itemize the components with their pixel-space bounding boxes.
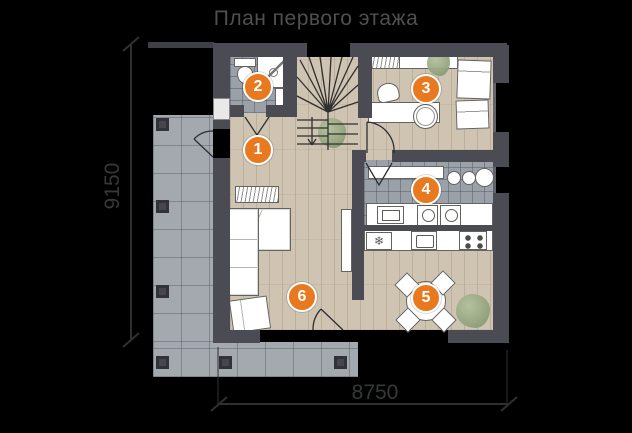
window-left bbox=[213, 98, 230, 120]
room-marker-2: 2 bbox=[243, 72, 273, 102]
room-number: 1 bbox=[254, 141, 263, 159]
dimension-label-height: 9150 bbox=[101, 147, 125, 225]
dimension-line-left bbox=[123, 37, 139, 347]
terrace-fence bbox=[148, 42, 214, 48]
room-marker-4: 4 bbox=[411, 175, 441, 205]
bed-icon bbox=[456, 59, 491, 99]
wall-bedroom-laundry bbox=[352, 150, 366, 162]
wall-living-kitchen bbox=[352, 162, 364, 300]
sofa-icon bbox=[228, 208, 259, 296]
fridge-icon: ❄ bbox=[366, 232, 392, 250]
terrace-post bbox=[334, 356, 347, 369]
sink-bowl-icon bbox=[447, 171, 461, 185]
window-glass bbox=[493, 167, 496, 193]
floor-plan-viewer: План первого этажа 9150 8750 bbox=[0, 0, 632, 433]
wall-bottom-right bbox=[448, 330, 507, 343]
terrace-post bbox=[219, 356, 232, 369]
wall-bottom-left bbox=[213, 330, 260, 343]
terrace-bottom bbox=[153, 342, 358, 377]
dimension-label-width: 8750 bbox=[330, 381, 420, 405]
tv-unit-icon bbox=[341, 209, 352, 272]
stove-icon bbox=[459, 231, 487, 250]
entry-door-opening bbox=[213, 129, 230, 158]
room-number: 5 bbox=[422, 289, 431, 307]
hall-wardrobe-icon bbox=[235, 186, 279, 203]
dryer-icon bbox=[440, 205, 461, 226]
terrace-post bbox=[156, 200, 169, 213]
room-number: 3 bbox=[422, 80, 431, 98]
room-number: 2 bbox=[254, 78, 263, 96]
room-marker-1: 1 bbox=[243, 135, 273, 165]
wall-bathroom-bottom bbox=[266, 105, 297, 117]
wall-top bbox=[213, 43, 507, 57]
wall-laundry-kitchen bbox=[352, 225, 493, 231]
washing-machine-icon bbox=[417, 205, 438, 226]
snowflake-icon: ❄ bbox=[374, 234, 384, 248]
wall-bedroom-laundry bbox=[392, 150, 493, 162]
round-table-icon bbox=[413, 104, 438, 129]
bed-icon bbox=[456, 99, 490, 129]
wall-bathroom-bottom bbox=[230, 105, 244, 117]
window-glass bbox=[493, 83, 496, 132]
room-marker-6: 6 bbox=[287, 282, 317, 312]
terrace-left bbox=[153, 115, 213, 342]
wall-top-notch bbox=[307, 43, 350, 57]
wall-stairs-bedroom bbox=[358, 57, 372, 118]
room-marker-5: 5 bbox=[411, 283, 441, 313]
page-title: План первого этажа bbox=[0, 7, 632, 31]
room-marker-3: 3 bbox=[411, 74, 441, 104]
sink-bowl-icon bbox=[462, 171, 476, 185]
plant-icon bbox=[456, 294, 490, 328]
kitchen-sink-icon bbox=[411, 231, 437, 250]
armchair-icon bbox=[229, 296, 271, 334]
room-number: 4 bbox=[422, 181, 431, 199]
terrace-post bbox=[156, 356, 169, 369]
terrace-post bbox=[156, 118, 169, 131]
room-number: 6 bbox=[298, 288, 307, 306]
boiler-icon bbox=[377, 206, 404, 224]
plant-icon bbox=[318, 118, 346, 148]
sink-bowl-icon bbox=[475, 168, 494, 187]
terrace-post bbox=[156, 285, 169, 298]
